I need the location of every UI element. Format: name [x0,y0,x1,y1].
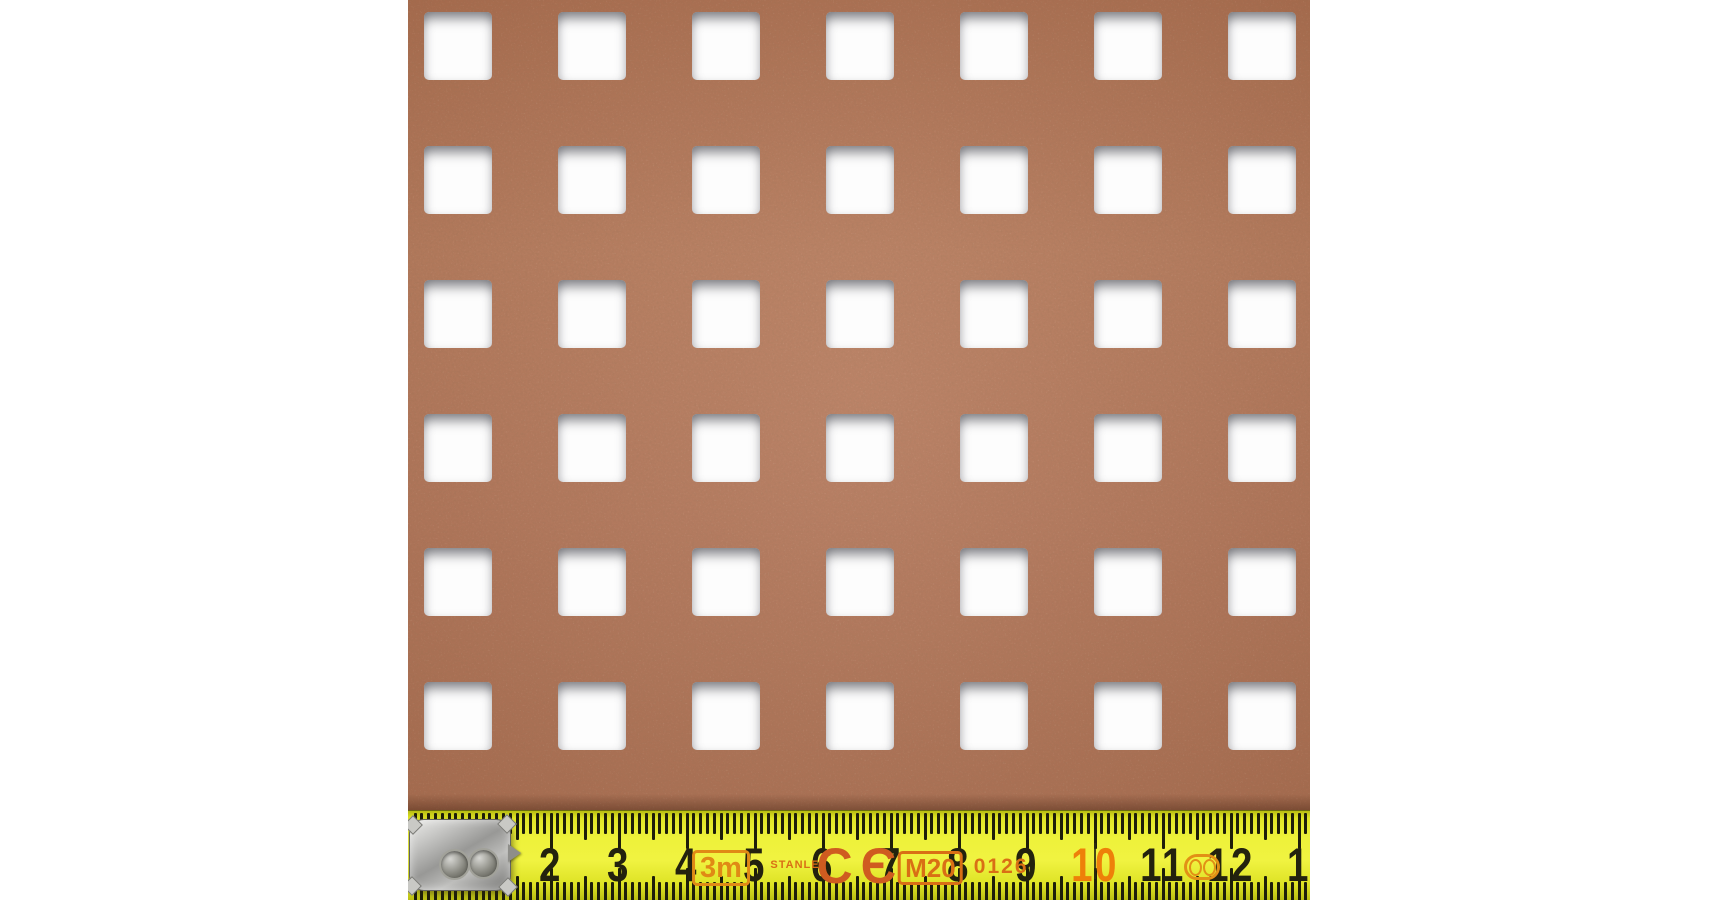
ruler-tick [1264,813,1267,840]
sheet-hole [960,280,1028,348]
ruler-tick [1128,876,1131,900]
ruler-tick [1257,882,1260,900]
ruler-tick [543,813,546,834]
ruler-tick [842,813,845,834]
sheet-hole [1094,548,1162,616]
cm-number: 10 [1071,843,1119,887]
ruler-tick [828,813,831,834]
ruler-tick [801,882,804,900]
ruler-tick [876,813,879,834]
ruler-tick [1046,882,1049,900]
ruler-tick [1250,813,1253,834]
ruler-tick [1270,813,1273,834]
ruler-tick [1270,882,1273,900]
sheet-hole [424,280,492,348]
ruler-tick [536,813,539,834]
length-marking: 3m [692,850,750,886]
sheet-hole [558,414,626,482]
ring-icon [1203,859,1216,876]
ruler-tick [1066,813,1069,834]
folding-ruler: 234567891011121 3mSTANLEYCЄM200126 [408,810,1310,900]
ruler-tick [1080,813,1083,834]
ruler-tick [978,882,981,900]
ruler-tick [692,813,695,834]
ruler-tick [781,813,784,834]
ruler-tick [903,813,906,834]
ruler-tick [917,813,920,834]
ruler-tick [1264,876,1267,900]
ruler-tick [1100,813,1103,834]
ruler-tick [978,813,981,834]
ruler-tick [767,882,770,900]
ruler-tick [658,813,661,834]
rivet-icon [439,849,470,880]
ruler-tick [611,813,614,834]
sheet-hole [1094,414,1162,482]
ruler-tick [597,813,600,834]
ruler-tick [781,882,784,900]
ruler-tick [624,813,627,834]
sheet-hole [826,146,894,214]
cm-number: 11 [1140,843,1186,887]
ruler-tick [1019,813,1022,834]
ruler-tick [760,813,763,834]
ruler-tick [652,813,655,840]
ruler-tick [774,813,777,834]
ruler-tick [1121,813,1124,834]
ruler-tick [590,882,593,900]
ruler-tick [964,813,967,834]
ruler-tick [1291,813,1294,834]
ruler-tick [563,882,566,900]
ruler-tick [1107,813,1110,834]
sheet-hole [692,548,760,616]
product-photo-canvas: 234567891011121 3mSTANLEYCЄM200126 [0,0,1719,900]
sheet-hole [1228,146,1296,214]
ruler-tick [720,813,723,840]
ruler-tick [951,813,954,834]
ruler-tick [529,882,532,900]
ruler-tick [801,813,804,834]
sheet-hole [692,146,760,214]
sheet-hole [1228,280,1296,348]
ruler-tick [924,813,927,840]
ruler-tick [1277,813,1280,834]
sheet-hole [1094,280,1162,348]
ruler-tick [672,813,675,834]
ruler-tick [726,813,729,834]
ruler-tick [1155,813,1158,834]
sheet-hole [1094,12,1162,80]
sheet-hole [960,414,1028,482]
rivet-icon [468,848,499,879]
sheet-hole [826,414,894,482]
ruler-tick [1236,813,1239,834]
ruler-tick [1134,813,1137,834]
ruler-tick [1060,813,1063,840]
ruler-tick [856,813,859,840]
ruler-tick [808,813,811,834]
ruler-tick [631,813,634,834]
ruler-tick [971,882,974,900]
ruler-tick [1304,813,1307,834]
ruler-tick [522,882,525,900]
sheet-hole [558,548,626,616]
sheet-hole [1228,12,1296,80]
notified-body-number: 0126 [974,855,1029,879]
ruler-tick [794,813,797,834]
ruler-tick [794,882,797,900]
ruler-tick [1005,813,1008,834]
clasp-arrow-tab [508,844,521,862]
ruler-tick [1243,813,1246,834]
sheet-hole [1094,682,1162,750]
ruler-tick [985,882,988,900]
ruler-tick [1060,876,1063,900]
ruler-tick [699,813,702,834]
sheet-hole [692,12,760,80]
ruler-tick [1202,882,1205,900]
ruler-tick [896,813,899,834]
ruler-tick [522,813,525,834]
ruler-tick [992,813,995,840]
ruler-tick [740,813,743,834]
ruler-tick [944,813,947,834]
sheet-hole [692,682,760,750]
ruler-tick [1196,813,1199,840]
ruler-tick [883,813,886,834]
ruler-tick [631,882,634,900]
ruler-tick [665,882,668,900]
ruler-tick [1053,882,1056,900]
ruler-tick [645,882,648,900]
ruler-tick [998,882,1001,900]
ruler-tick [910,813,913,834]
ruler-tick [1039,813,1042,834]
ruler-tick [584,876,587,900]
ruler-tick [516,813,519,840]
sheet-hole [1228,414,1296,482]
sheet-hole [960,548,1028,616]
ruler-tick [1128,813,1131,840]
ruler-tick [1087,813,1090,834]
ruler-tick [1209,813,1212,834]
ruler-tick [584,813,587,840]
ruler-tick [638,882,641,900]
ruler-tick [862,813,865,834]
ruler-hinge-clasp [409,819,511,891]
ruler-tick [937,813,940,834]
ruler-tick [971,813,974,834]
sheet-hole [826,280,894,348]
ruler-tick [556,813,559,834]
cm-number: 1 [1287,843,1310,887]
ruler-tick [706,813,709,834]
ruler-tick [713,813,716,834]
ruler-tick [1168,813,1171,834]
ring-icon [1189,859,1202,876]
ruler-tick [645,813,648,834]
ruler-tick [774,882,777,900]
ruler-tick [1005,882,1008,900]
ruler-tick [1141,813,1144,834]
ruler-tick [1053,813,1056,834]
cm-number: 2 [539,843,563,887]
ruler-tick [577,813,580,834]
ruler-tick [930,813,933,834]
ruler-tick [658,882,661,900]
clasp-spring-nub [497,814,517,834]
ruler-tick [869,813,872,834]
ruler-tick [1046,813,1049,834]
sheet-hole [826,12,894,80]
ruler-tick [570,882,573,900]
cm-number: 3 [607,843,631,887]
ruler-tick [577,882,580,900]
ruler-tick [835,813,838,834]
ruler-tick [1202,813,1205,834]
sheet-hole [558,146,626,214]
ruler-tick [1073,813,1076,834]
ruler-tick [1277,882,1280,900]
sheet-hole [558,682,626,750]
ruler-tick [1284,813,1287,834]
ruler-tick [1182,813,1185,834]
ruler-tick [665,813,668,834]
ruler-tick [1148,813,1151,834]
ruler-tick [570,813,573,834]
sheet-hole [424,414,492,482]
ruler-tick [1175,813,1178,834]
sheet-hole [424,682,492,750]
sheet-hole [960,12,1028,80]
ruler-tick [1257,813,1260,834]
ruler-tick [604,813,607,834]
sheet-hole [826,548,894,616]
sheet-hole [1228,548,1296,616]
sheet-hole [424,12,492,80]
ruler-tick [1216,813,1219,834]
ruler-tick [767,813,770,834]
ruler-tick [638,813,641,834]
ruler-tick [788,876,791,900]
sheet-hole [692,280,760,348]
ruler-tick [1012,813,1015,834]
approval-marking: M20 [898,851,963,885]
sheet-hole [558,280,626,348]
ruler-tick [563,813,566,834]
ruler-tick [733,813,736,834]
ruler-tick [985,813,988,834]
ruler-tick [1223,813,1226,834]
ruler-tick [590,813,593,834]
sheet-hole [1228,682,1296,750]
ruler-tick [747,813,750,834]
ruler-tick [1039,882,1042,900]
ruler-tick [679,813,682,834]
joint-rings-icon [1184,854,1220,880]
ruler-tick [1114,813,1117,834]
sheet-hole [960,146,1028,214]
sheet-hole [558,12,626,80]
ruler-tick [1032,813,1035,834]
ruler-tick [992,876,995,900]
sheet-hole [692,414,760,482]
ruler-tick [849,813,852,834]
ruler-tick [788,813,791,840]
sheet-hole [424,548,492,616]
ruler-tick [529,813,532,834]
ruler-tick [1121,882,1124,900]
sheet-hole [826,682,894,750]
ruler-tick [597,882,600,900]
ruler-tick [998,813,1001,834]
ruler-tick [815,813,818,834]
sheet-hole [1094,146,1162,214]
ruler-tick [1066,882,1069,900]
sheet-hole [424,146,492,214]
ruler-tick [1189,882,1192,900]
ruler-tick [1134,882,1137,900]
ruler-tick [652,876,655,900]
sheet-hole [960,682,1028,750]
product-photo: 234567891011121 3mSTANLEYCЄM200126 [408,0,1310,900]
ruler-tick [1189,813,1192,834]
ce-marking: CЄ [817,837,905,895]
